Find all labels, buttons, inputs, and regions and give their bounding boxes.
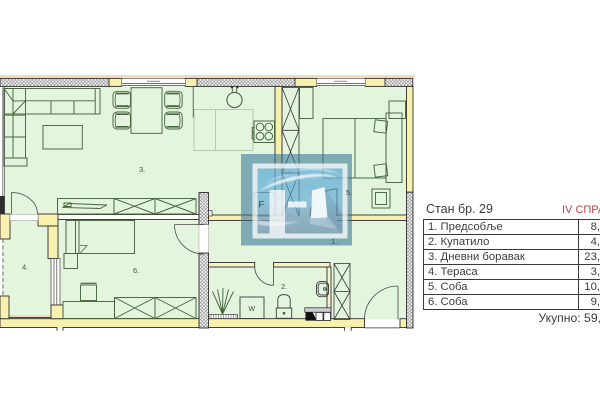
svg-text:2.: 2. [281, 282, 287, 291]
svg-text:F: F [259, 200, 265, 211]
svg-text:6.: 6. [133, 266, 139, 275]
svg-text:W: W [249, 306, 256, 313]
svg-text:1.: 1. [331, 237, 337, 246]
svg-text:4.: 4. [22, 263, 28, 272]
svg-text:3.: 3. [139, 165, 145, 174]
svg-text:5.: 5. [346, 188, 352, 197]
